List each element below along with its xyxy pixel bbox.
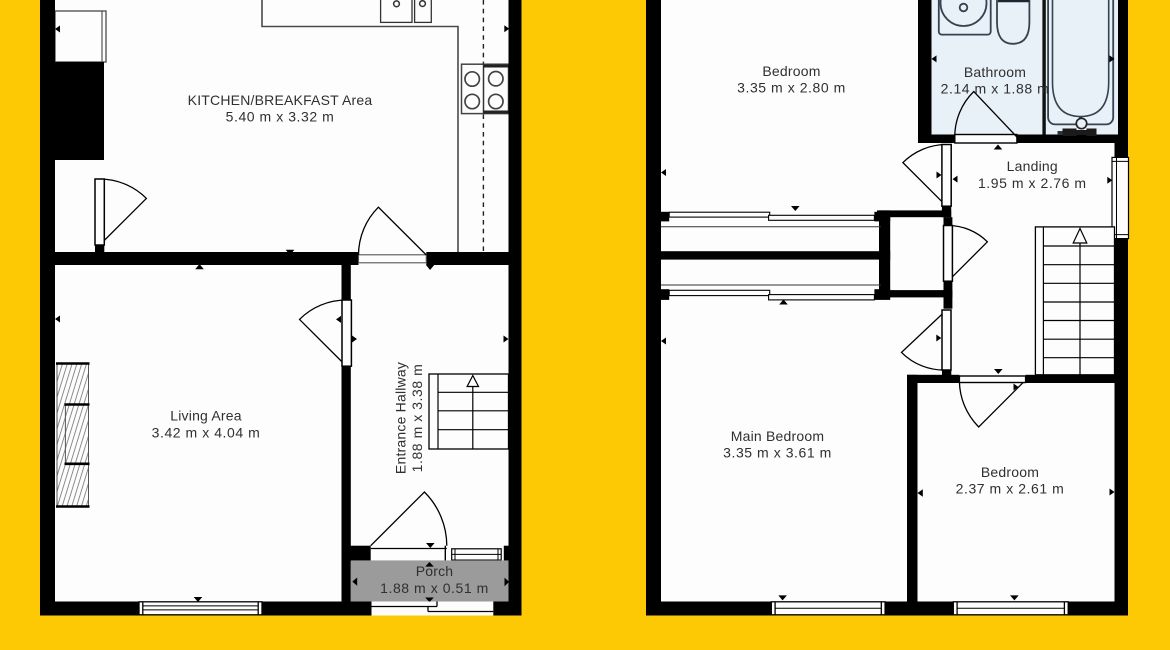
svg-text:5.40 m x 3.32 m: 5.40 m x 3.32 m — [226, 109, 335, 125]
svg-text:2.14 m x 1.88 m: 2.14 m x 1.88 m — [941, 81, 1050, 97]
svg-text:3.42 m x 4.04 m: 3.42 m x 4.04 m — [152, 425, 261, 441]
svg-text:Landing: Landing — [1007, 158, 1058, 174]
svg-text:3.35 m x 2.80 m: 3.35 m x 2.80 m — [737, 80, 846, 96]
svg-text:1.95 m x 2.76 m: 1.95 m x 2.76 m — [978, 175, 1087, 191]
svg-text:Entrance Hallway: Entrance Hallway — [393, 362, 409, 474]
svg-text:Bathroom: Bathroom — [964, 64, 1026, 80]
svg-text:Porch: Porch — [416, 563, 454, 579]
svg-text:Living Area: Living Area — [170, 408, 241, 424]
svg-text:KITCHEN/BREAKFAST Area: KITCHEN/BREAKFAST Area — [188, 92, 373, 108]
svg-text:Main Bedroom: Main Bedroom — [731, 428, 824, 444]
svg-text:1.88 m x 0.51 m: 1.88 m x 0.51 m — [380, 580, 489, 596]
svg-text:Bedroom: Bedroom — [981, 464, 1039, 480]
svg-text:2.37 m x 2.61 m: 2.37 m x 2.61 m — [956, 481, 1065, 497]
svg-text:3.35 m x 3.61 m: 3.35 m x 3.61 m — [723, 445, 832, 461]
svg-text:1.88 m x 3.38 m: 1.88 m x 3.38 m — [409, 364, 425, 473]
svg-text:Bedroom: Bedroom — [762, 63, 820, 79]
